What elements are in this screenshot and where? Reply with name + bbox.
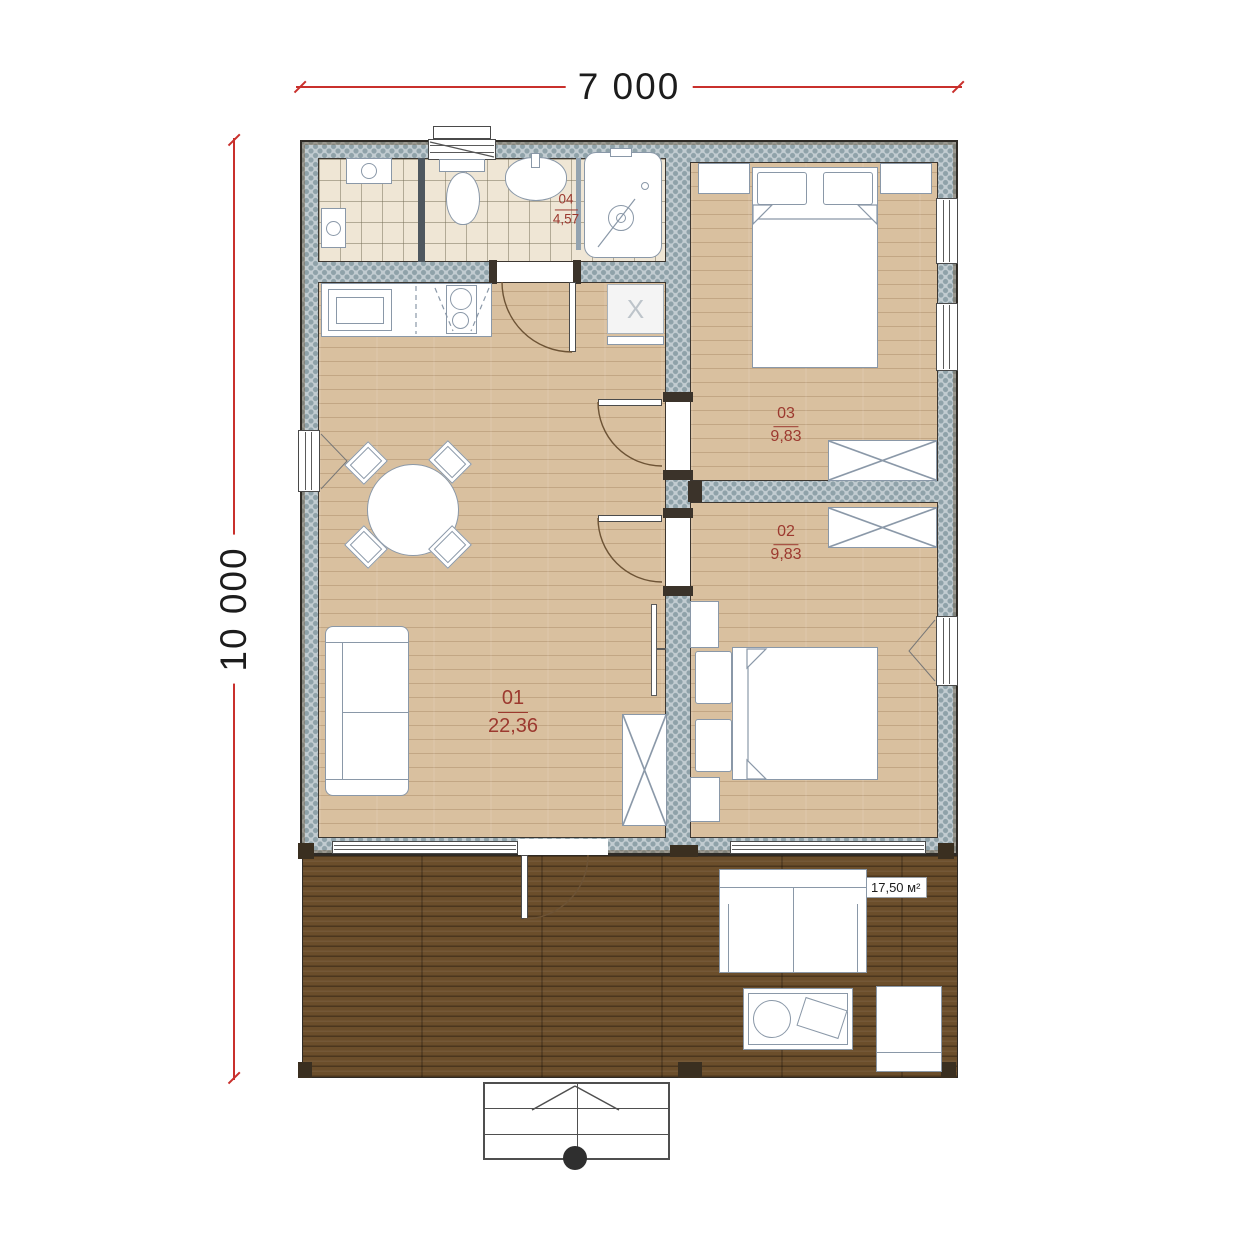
room-number: 03 xyxy=(773,404,799,427)
toilet-bowl xyxy=(446,172,480,225)
washbasin-tap xyxy=(531,153,540,168)
jamb-post xyxy=(663,508,693,518)
bathroom-door-opening xyxy=(497,262,573,282)
floor-plan-canvas: 7 000 10 000 xyxy=(0,0,1241,1241)
sofa xyxy=(325,626,409,796)
bedroom-back-door-leaf xyxy=(598,399,662,406)
wardrobe-living xyxy=(622,714,667,826)
room-label-bedroom-front: 02 9,83 xyxy=(770,522,801,566)
terrace-area-badge: 17,50 м² xyxy=(864,877,927,898)
stove-burner-large xyxy=(450,288,472,310)
jamb-post xyxy=(663,586,693,596)
room-area: 22,36 xyxy=(488,713,538,739)
room-label-bedroom-back: 03 9,83 xyxy=(770,404,801,448)
dimension-left: 10 000 xyxy=(208,134,256,1084)
outdoor-sofa-armrest xyxy=(728,904,729,972)
jamb-post xyxy=(489,260,497,284)
bed-front-pillow xyxy=(695,719,732,772)
nightstand xyxy=(690,777,720,822)
outdoor-sofa-armrest xyxy=(857,904,858,972)
appliance-unit: X xyxy=(607,284,664,334)
laundry-sink-drain xyxy=(361,163,377,179)
dimension-top: 7 000 xyxy=(292,62,966,106)
entrance-steps xyxy=(483,1082,670,1160)
deck-post xyxy=(298,1062,312,1078)
deck-post xyxy=(670,845,698,857)
sofa-armrest-top xyxy=(326,642,408,643)
stove-burner-small xyxy=(452,312,469,329)
laundry-partition-wall xyxy=(418,158,425,262)
jamb-post xyxy=(663,392,693,402)
tv-bracket xyxy=(657,648,666,650)
shower-drain-center xyxy=(616,213,626,223)
living-room-front-window xyxy=(332,841,518,854)
room-number: 01 xyxy=(498,685,528,713)
outdoor-sofa-cushion-split xyxy=(793,887,794,972)
bed-front-pillow xyxy=(695,651,732,704)
appliance-mark: X xyxy=(627,294,644,325)
deck-post xyxy=(938,843,954,859)
dimension-width-label: 7 000 xyxy=(566,66,693,108)
kitchen-sink-basin xyxy=(336,297,384,324)
bedroom-back-window-2 xyxy=(936,303,958,371)
bedroom-front-window xyxy=(730,841,926,854)
sofa-backrest xyxy=(342,642,343,780)
bathroom-door-leaf xyxy=(569,282,576,352)
bedroom-front-door-leaf xyxy=(598,515,662,522)
bed-back-pillow xyxy=(823,172,873,205)
shower-knob xyxy=(641,182,649,190)
room-label-bathroom: 04 4,57 xyxy=(553,190,579,227)
dimension-height-label: 10 000 xyxy=(213,534,255,683)
nightstand xyxy=(880,163,932,194)
coffee-table xyxy=(743,988,853,1050)
nightstand xyxy=(698,163,750,194)
jamb-post xyxy=(688,481,702,502)
living-room-side-window xyxy=(298,430,320,492)
toilet-tank xyxy=(439,159,485,172)
nightstand xyxy=(690,601,719,648)
bedroom-back-door-opening xyxy=(666,402,690,470)
outdoor-armchair-seat-edge xyxy=(877,1052,941,1053)
room-number: 02 xyxy=(773,522,799,545)
wardrobe-bedroom-front xyxy=(828,507,937,548)
step-center-line xyxy=(577,1084,578,1158)
room-number: 04 xyxy=(554,190,577,210)
room-area: 4,57 xyxy=(553,210,579,228)
sofa-armrest-bottom xyxy=(326,779,408,780)
room-label-living: 01 22,36 xyxy=(488,685,538,739)
coffee-table-tray xyxy=(753,1000,791,1038)
bed-back-pillow xyxy=(757,172,807,205)
bedroom-back-window-1 xyxy=(936,198,958,264)
terrace-door-opening xyxy=(518,839,608,855)
tv-screen xyxy=(651,604,657,696)
wardrobe-bedroom-back xyxy=(828,440,937,481)
jamb-post xyxy=(573,260,581,284)
outdoor-armchair xyxy=(876,986,942,1072)
entry-porch-step xyxy=(433,126,491,139)
jamb-post xyxy=(663,470,693,480)
sofa-cushion-split xyxy=(342,712,408,713)
bedroom-front-door-opening xyxy=(666,518,690,586)
outdoor-sofa xyxy=(719,869,867,973)
deck-post xyxy=(678,1062,702,1078)
deck-post xyxy=(941,1062,956,1078)
appliance-shelf xyxy=(607,336,664,345)
room-area: 9,83 xyxy=(770,545,801,566)
terrace-door-leaf xyxy=(521,855,528,919)
shower-mixer xyxy=(610,148,632,157)
washing-machine-door xyxy=(326,221,341,236)
bathroom-window xyxy=(428,139,496,160)
bed-front xyxy=(732,647,878,780)
bedroom-front-window-side xyxy=(936,616,958,686)
deck-post xyxy=(298,843,314,859)
room-area: 9,83 xyxy=(770,427,801,448)
